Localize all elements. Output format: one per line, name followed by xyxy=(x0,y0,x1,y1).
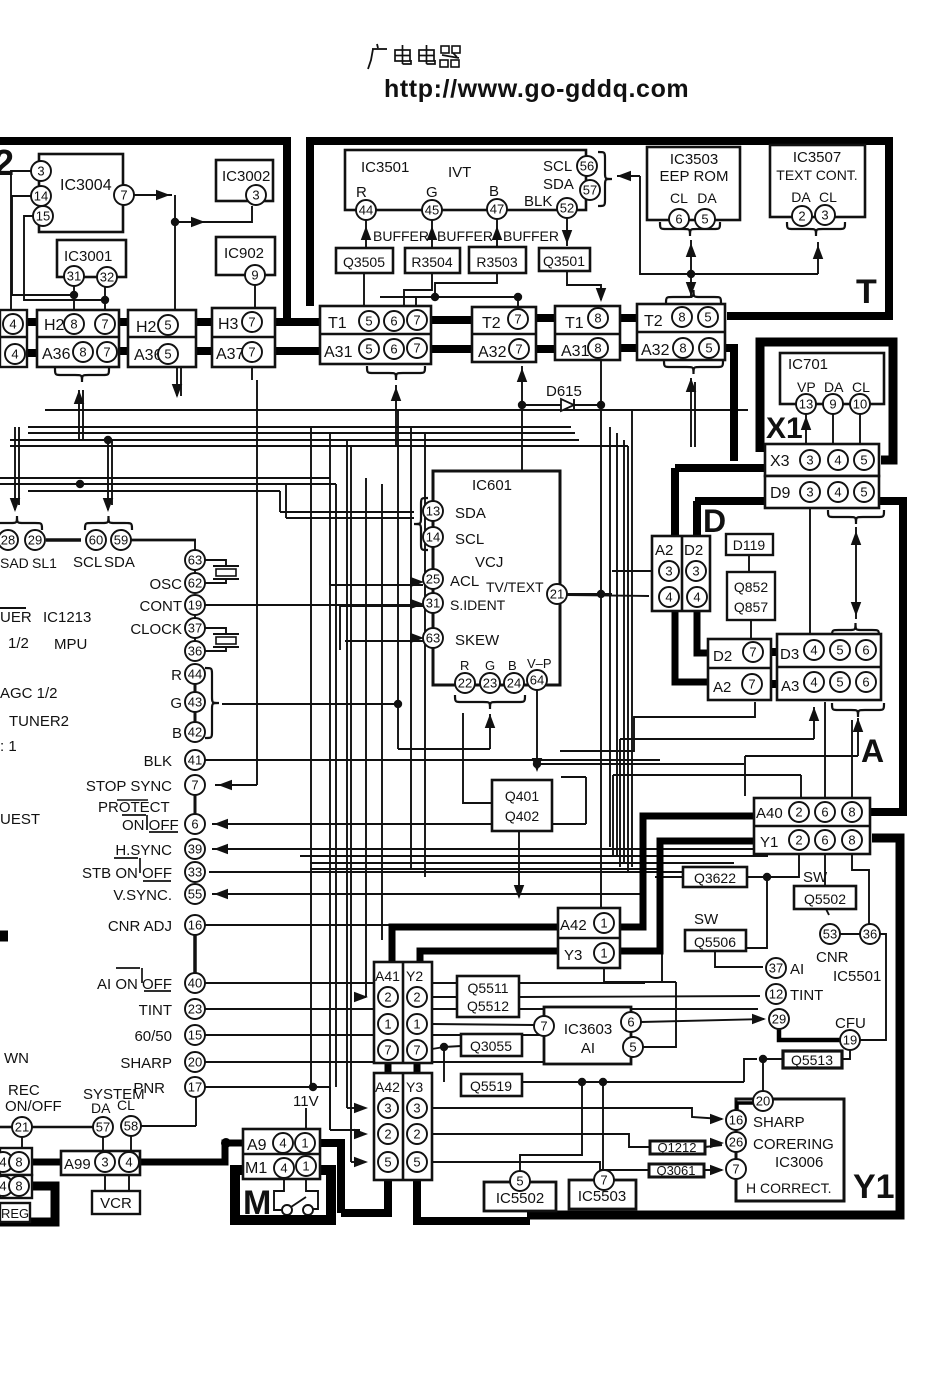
svg-text:7: 7 xyxy=(120,188,127,203)
svg-text:36: 36 xyxy=(188,644,202,659)
svg-text:47: 47 xyxy=(490,202,504,217)
svg-text:SHARP: SHARP xyxy=(753,1114,805,1131)
svg-text:SAD: SAD xyxy=(0,555,29,571)
svg-text:Y3: Y3 xyxy=(406,1079,423,1095)
svg-text:24: 24 xyxy=(507,676,521,691)
svg-text:Y1: Y1 xyxy=(760,834,778,851)
svg-text:A3: A3 xyxy=(781,678,799,695)
svg-text:5: 5 xyxy=(413,1155,420,1170)
svg-text:R: R xyxy=(171,667,182,684)
svg-text:5: 5 xyxy=(629,1040,636,1055)
svg-text:42: 42 xyxy=(188,725,202,740)
svg-text:REC: REC xyxy=(8,1082,40,1099)
svg-text:29: 29 xyxy=(28,533,42,548)
svg-text:SW: SW xyxy=(803,869,828,886)
svg-text:23: 23 xyxy=(483,676,497,691)
svg-text:7: 7 xyxy=(748,677,755,692)
svg-text:SDA: SDA xyxy=(104,554,135,571)
svg-text:8: 8 xyxy=(15,1179,22,1194)
svg-text:CNR ADJ: CNR ADJ xyxy=(108,918,172,935)
svg-text:H CORRECT.: H CORRECT. xyxy=(746,1180,832,1196)
svg-text:VP: VP xyxy=(797,379,816,395)
svg-text:3: 3 xyxy=(806,485,813,500)
svg-text:STOP SYNC: STOP SYNC xyxy=(86,778,172,795)
svg-text:IC3006: IC3006 xyxy=(775,1154,823,1171)
svg-text:14: 14 xyxy=(426,530,440,545)
svg-text:64: 64 xyxy=(530,673,544,688)
svg-text:5: 5 xyxy=(164,318,171,333)
svg-text:A2: A2 xyxy=(713,679,731,696)
svg-text:13: 13 xyxy=(799,397,813,412)
svg-text:R: R xyxy=(460,658,469,673)
svg-text:D615: D615 xyxy=(546,383,582,400)
svg-text:H.SYNC: H.SYNC xyxy=(115,842,172,859)
svg-text:T2: T2 xyxy=(482,315,501,332)
svg-text:IC601: IC601 xyxy=(472,477,512,494)
svg-text:2: 2 xyxy=(413,1127,420,1142)
svg-text:TV/TEXT: TV/TEXT xyxy=(486,579,544,595)
svg-text:TINT: TINT xyxy=(790,987,823,1004)
svg-text:5: 5 xyxy=(860,485,867,500)
svg-text:CL: CL xyxy=(117,1097,135,1113)
svg-text:AI: AI xyxy=(790,961,804,978)
svg-text:IC3501: IC3501 xyxy=(361,159,409,176)
svg-text:IVT: IVT xyxy=(448,164,471,181)
svg-text:20: 20 xyxy=(188,1055,202,1070)
svg-text:4: 4 xyxy=(810,643,817,658)
svg-text:CLOCK: CLOCK xyxy=(130,621,182,638)
svg-text:63: 63 xyxy=(188,553,202,568)
svg-text:Y3: Y3 xyxy=(564,947,582,964)
svg-text:40: 40 xyxy=(188,976,202,991)
svg-text:A42: A42 xyxy=(375,1079,400,1095)
svg-text:10: 10 xyxy=(853,397,867,412)
svg-text:12: 12 xyxy=(769,987,783,1002)
svg-text:55: 55 xyxy=(188,887,202,902)
svg-text:SHARP: SHARP xyxy=(120,1055,172,1072)
svg-text:Y2: Y2 xyxy=(406,968,423,984)
svg-text:AGC 1/2: AGC 1/2 xyxy=(0,685,58,702)
svg-text:A9: A9 xyxy=(247,1137,267,1154)
svg-text:2: 2 xyxy=(798,209,805,224)
svg-text:31: 31 xyxy=(67,269,81,284)
svg-text:H2: H2 xyxy=(44,317,65,334)
svg-text:IC701: IC701 xyxy=(788,356,828,373)
svg-text:TINT: TINT xyxy=(139,1002,172,1019)
svg-text:5: 5 xyxy=(164,347,171,362)
svg-text:DA: DA xyxy=(791,189,811,205)
svg-text:D3: D3 xyxy=(780,646,799,663)
svg-text:SW: SW xyxy=(694,911,719,928)
svg-text:Q5519: Q5519 xyxy=(470,1078,512,1094)
svg-text:6: 6 xyxy=(821,833,828,848)
svg-text:BLK: BLK xyxy=(144,753,172,770)
svg-text:60/50: 60/50 xyxy=(134,1028,172,1045)
svg-text:CORERING: CORERING xyxy=(753,1136,834,1153)
svg-text:A37: A37 xyxy=(216,346,245,363)
svg-text:R3503: R3503 xyxy=(476,254,517,270)
svg-text:1: 1 xyxy=(301,1136,308,1151)
svg-text:7: 7 xyxy=(103,345,110,360)
svg-text:63: 63 xyxy=(426,631,440,646)
svg-text:A99: A99 xyxy=(64,1156,91,1173)
svg-text:2: 2 xyxy=(795,833,802,848)
svg-text:Q401: Q401 xyxy=(505,788,539,804)
svg-text:8: 8 xyxy=(679,341,686,356)
svg-text:8: 8 xyxy=(594,341,601,356)
svg-text:13: 13 xyxy=(426,504,440,519)
svg-text:D119: D119 xyxy=(733,537,766,553)
svg-text:Q3055: Q3055 xyxy=(470,1038,512,1054)
svg-text:MPU: MPU xyxy=(54,636,87,653)
svg-text:7: 7 xyxy=(515,342,522,357)
svg-text:4: 4 xyxy=(11,347,18,362)
svg-text:5: 5 xyxy=(836,675,843,690)
svg-text:http://www.go-gddq.com: http://www.go-gddq.com xyxy=(384,75,689,103)
svg-text:5: 5 xyxy=(516,1174,523,1189)
svg-text:7: 7 xyxy=(514,312,521,327)
svg-text:ON/OFF: ON/OFF xyxy=(5,1098,62,1115)
svg-text:G: G xyxy=(170,695,182,712)
svg-text:4: 4 xyxy=(0,1179,7,1194)
svg-text:V–P: V–P xyxy=(527,656,552,671)
svg-text:7: 7 xyxy=(540,1019,547,1034)
svg-text:2: 2 xyxy=(384,990,391,1005)
svg-text:9: 9 xyxy=(829,397,836,412)
svg-text:REG: REG xyxy=(1,1206,29,1221)
svg-text:A41: A41 xyxy=(375,968,400,984)
svg-text:M: M xyxy=(243,1184,271,1222)
svg-text:G: G xyxy=(426,184,438,201)
svg-text:58: 58 xyxy=(124,1119,138,1134)
svg-text:SCL: SCL xyxy=(73,554,102,571)
svg-text:IC5502: IC5502 xyxy=(496,1190,544,1207)
svg-text:39: 39 xyxy=(188,842,202,857)
svg-text:VCR: VCR xyxy=(100,1195,132,1212)
svg-text:IC3004: IC3004 xyxy=(60,177,112,194)
svg-text:AI: AI xyxy=(581,1040,595,1057)
svg-text:1: 1 xyxy=(384,1017,391,1032)
svg-text:SCL: SCL xyxy=(543,158,572,175)
svg-text:R: R xyxy=(356,184,367,201)
svg-text:Q852: Q852 xyxy=(734,579,768,595)
svg-text:6: 6 xyxy=(862,675,869,690)
svg-text:H2: H2 xyxy=(136,319,157,336)
svg-text:OSC: OSC xyxy=(149,576,182,593)
svg-text:Q3505: Q3505 xyxy=(343,254,385,270)
svg-text:7: 7 xyxy=(413,341,420,356)
svg-text:7: 7 xyxy=(384,1043,391,1058)
svg-text:UEST: UEST xyxy=(0,811,40,828)
svg-text:44: 44 xyxy=(359,203,373,218)
svg-text:43: 43 xyxy=(188,695,202,710)
svg-text:BUFFER: BUFFER xyxy=(503,228,559,244)
svg-text:3: 3 xyxy=(413,1101,420,1116)
svg-text:DA: DA xyxy=(697,190,717,206)
svg-text:CL: CL xyxy=(670,190,688,206)
svg-text:V.SYNC.: V.SYNC. xyxy=(113,887,172,904)
svg-text:4: 4 xyxy=(693,590,700,605)
svg-text:52: 52 xyxy=(560,201,574,216)
svg-text:D9: D9 xyxy=(770,485,791,502)
svg-text:7: 7 xyxy=(413,313,420,328)
svg-text:8: 8 xyxy=(15,1155,22,1170)
svg-text:4: 4 xyxy=(834,453,841,468)
svg-text:60: 60 xyxy=(89,533,103,548)
svg-text:Y1: Y1 xyxy=(853,1168,895,1206)
svg-text:IC902: IC902 xyxy=(224,245,264,262)
svg-text:21: 21 xyxy=(15,1120,29,1135)
svg-text:A40: A40 xyxy=(756,805,783,822)
svg-text:: 1: : 1 xyxy=(0,738,17,755)
svg-text:BUFFER: BUFFER xyxy=(373,228,429,244)
svg-text:UER: UER xyxy=(0,609,32,626)
svg-text:3: 3 xyxy=(806,453,813,468)
svg-text:11V: 11V xyxy=(293,1093,319,1110)
svg-text:2: 2 xyxy=(384,1127,391,1142)
svg-text:36: 36 xyxy=(863,927,877,942)
svg-text:Q3061: Q3061 xyxy=(656,1163,695,1178)
svg-text:6: 6 xyxy=(675,212,682,227)
svg-text:7: 7 xyxy=(191,778,198,793)
svg-text:4: 4 xyxy=(280,1161,287,1176)
svg-text:DA: DA xyxy=(91,1100,111,1116)
svg-text:7: 7 xyxy=(749,645,756,660)
svg-text:4: 4 xyxy=(0,1155,7,1170)
svg-text:57: 57 xyxy=(583,183,597,198)
svg-text:DA: DA xyxy=(824,379,844,395)
svg-text:A31: A31 xyxy=(561,343,590,360)
svg-text:33: 33 xyxy=(188,865,202,880)
svg-text:41: 41 xyxy=(188,753,202,768)
svg-text:IC3503: IC3503 xyxy=(670,151,718,168)
svg-text:2: 2 xyxy=(0,142,14,183)
svg-text:7: 7 xyxy=(413,1043,420,1058)
svg-text:M1: M1 xyxy=(245,1160,267,1177)
svg-text:T1: T1 xyxy=(565,315,584,332)
svg-text:6: 6 xyxy=(627,1015,634,1030)
svg-text:16: 16 xyxy=(729,1113,743,1128)
svg-text:5: 5 xyxy=(704,310,711,325)
svg-text:B: B xyxy=(508,658,517,673)
svg-text:5: 5 xyxy=(384,1155,391,1170)
svg-text:STB ON OFF: STB ON OFF xyxy=(82,865,172,882)
svg-text:CL: CL xyxy=(852,379,870,395)
svg-text:2: 2 xyxy=(413,990,420,1005)
svg-text:Q1212: Q1212 xyxy=(657,1140,696,1155)
svg-text:H3: H3 xyxy=(218,316,239,333)
svg-text:2: 2 xyxy=(795,805,802,820)
svg-text:ACL: ACL xyxy=(450,573,479,590)
svg-text:SCL: SCL xyxy=(455,531,484,548)
svg-text:8: 8 xyxy=(594,311,601,326)
svg-text:1: 1 xyxy=(600,946,607,961)
svg-text:8: 8 xyxy=(678,310,685,325)
svg-text:IC3507: IC3507 xyxy=(793,149,841,166)
svg-text:31: 31 xyxy=(426,596,440,611)
svg-text:TEXT CONT.: TEXT CONT. xyxy=(776,167,857,183)
svg-text:SDA: SDA xyxy=(543,176,574,193)
svg-text:53: 53 xyxy=(823,927,837,942)
svg-text:15: 15 xyxy=(188,1028,202,1043)
svg-text:SDA: SDA xyxy=(455,505,486,522)
svg-text:SKEW: SKEW xyxy=(455,632,500,649)
svg-text:Q5502: Q5502 xyxy=(804,891,846,907)
svg-text:IC3002: IC3002 xyxy=(222,168,270,185)
svg-text:19: 19 xyxy=(843,1033,857,1048)
svg-text:Q3501: Q3501 xyxy=(543,253,585,269)
svg-text:4: 4 xyxy=(834,485,841,500)
svg-text:44: 44 xyxy=(188,667,202,682)
svg-text:BLK: BLK xyxy=(524,193,552,210)
svg-text:21: 21 xyxy=(550,587,564,602)
svg-text:4: 4 xyxy=(9,317,16,332)
svg-text:A: A xyxy=(861,733,884,769)
svg-text:26: 26 xyxy=(729,1135,743,1150)
svg-text:6: 6 xyxy=(390,342,397,357)
svg-text:IC3603: IC3603 xyxy=(564,1021,612,1038)
svg-text:VCJ: VCJ xyxy=(475,554,503,571)
svg-text:3: 3 xyxy=(665,564,672,579)
svg-text:BUFFER: BUFFER xyxy=(437,228,493,244)
svg-text:EEP ROM: EEP ROM xyxy=(660,168,729,185)
svg-text:59: 59 xyxy=(114,533,128,548)
svg-text:8: 8 xyxy=(70,317,77,332)
svg-text:20: 20 xyxy=(756,1094,770,1109)
svg-text:3: 3 xyxy=(37,164,44,179)
svg-text:X1: X1 xyxy=(766,412,803,445)
svg-text:IC3001: IC3001 xyxy=(64,248,112,265)
svg-text:Q402: Q402 xyxy=(505,808,539,824)
svg-text:CL: CL xyxy=(819,189,837,205)
svg-text:IC1213: IC1213 xyxy=(43,609,91,626)
svg-text:Q3622: Q3622 xyxy=(694,870,736,886)
svg-text:5: 5 xyxy=(701,212,708,227)
svg-text:PROTECT: PROTECT xyxy=(98,799,170,816)
svg-text:3: 3 xyxy=(252,188,259,203)
svg-text:T: T xyxy=(856,273,877,311)
svg-text:7: 7 xyxy=(101,317,108,332)
svg-text:14: 14 xyxy=(34,189,48,204)
svg-text:4: 4 xyxy=(279,1136,286,1151)
svg-text:A31: A31 xyxy=(324,344,353,361)
svg-text:5: 5 xyxy=(705,341,712,356)
svg-text:7: 7 xyxy=(732,1162,739,1177)
svg-text:Q5512: Q5512 xyxy=(467,998,509,1014)
svg-text:19: 19 xyxy=(188,598,202,613)
svg-text:A36: A36 xyxy=(42,346,71,363)
svg-text:3: 3 xyxy=(821,208,828,223)
svg-text:A42: A42 xyxy=(560,917,587,934)
svg-text:Q5511: Q5511 xyxy=(468,980,509,996)
svg-text:Q5506: Q5506 xyxy=(694,934,736,950)
svg-text:45: 45 xyxy=(425,203,439,218)
svg-text:T2: T2 xyxy=(644,313,663,330)
svg-text:CONT: CONT xyxy=(140,598,183,615)
svg-text:T1: T1 xyxy=(328,315,347,332)
svg-text:TUNER2: TUNER2 xyxy=(9,713,69,730)
svg-text:WN: WN xyxy=(4,1050,29,1067)
svg-text:3: 3 xyxy=(101,1155,108,1170)
svg-text:7: 7 xyxy=(248,315,255,330)
svg-text:5: 5 xyxy=(860,453,867,468)
svg-text:8: 8 xyxy=(79,345,86,360)
svg-text:1/2: 1/2 xyxy=(8,635,29,652)
svg-text:B: B xyxy=(489,183,499,200)
svg-text:6: 6 xyxy=(821,805,828,820)
svg-text:Q857: Q857 xyxy=(734,599,768,615)
svg-text:D2: D2 xyxy=(684,542,703,559)
svg-text:X3: X3 xyxy=(770,453,790,470)
svg-text:A32: A32 xyxy=(641,342,670,359)
svg-text:8: 8 xyxy=(848,833,855,848)
svg-text:23: 23 xyxy=(188,1002,202,1017)
svg-text:22: 22 xyxy=(458,676,472,691)
svg-text:37: 37 xyxy=(188,621,202,636)
svg-text:29: 29 xyxy=(772,1012,786,1027)
svg-text:3: 3 xyxy=(384,1101,391,1116)
svg-text:CNR: CNR xyxy=(816,949,849,966)
svg-text:4: 4 xyxy=(665,590,672,605)
svg-text:G: G xyxy=(485,658,495,673)
svg-text:9: 9 xyxy=(251,268,258,283)
svg-text:6: 6 xyxy=(390,314,397,329)
svg-text:56: 56 xyxy=(580,159,594,174)
svg-text:A2: A2 xyxy=(655,542,673,559)
svg-text:17: 17 xyxy=(188,1080,202,1095)
svg-text:28: 28 xyxy=(1,533,15,548)
svg-text:IC5501: IC5501 xyxy=(833,968,881,985)
svg-text:32: 32 xyxy=(100,270,114,285)
svg-text:R3504: R3504 xyxy=(411,254,452,270)
svg-text:25: 25 xyxy=(426,572,440,587)
svg-text:15: 15 xyxy=(36,209,50,224)
svg-text:7: 7 xyxy=(248,345,255,360)
svg-text:4: 4 xyxy=(810,675,817,690)
svg-text:1: 1 xyxy=(600,916,607,931)
svg-text:8: 8 xyxy=(848,805,855,820)
svg-text:5: 5 xyxy=(365,342,372,357)
svg-text:4: 4 xyxy=(125,1155,132,1170)
svg-text:SL1: SL1 xyxy=(32,555,57,571)
svg-text:S.IDENT: S.IDENT xyxy=(450,597,506,613)
svg-text:D2: D2 xyxy=(713,648,732,665)
svg-text:Q5513: Q5513 xyxy=(791,1052,833,1068)
svg-text:57: 57 xyxy=(96,1120,110,1135)
svg-text:16: 16 xyxy=(188,918,202,933)
svg-text:1: 1 xyxy=(302,1159,309,1174)
svg-text:5: 5 xyxy=(836,643,843,658)
svg-text:1: 1 xyxy=(413,1017,420,1032)
svg-text:7: 7 xyxy=(600,1173,607,1188)
svg-text:3: 3 xyxy=(692,564,699,579)
svg-text:5: 5 xyxy=(365,314,372,329)
svg-text:6: 6 xyxy=(191,817,198,832)
svg-text:A32: A32 xyxy=(478,344,507,361)
svg-text:B: B xyxy=(172,725,182,742)
svg-text:62: 62 xyxy=(188,576,202,591)
svg-text:37: 37 xyxy=(769,961,783,976)
svg-text:D: D xyxy=(703,503,726,539)
svg-text:6: 6 xyxy=(862,643,869,658)
